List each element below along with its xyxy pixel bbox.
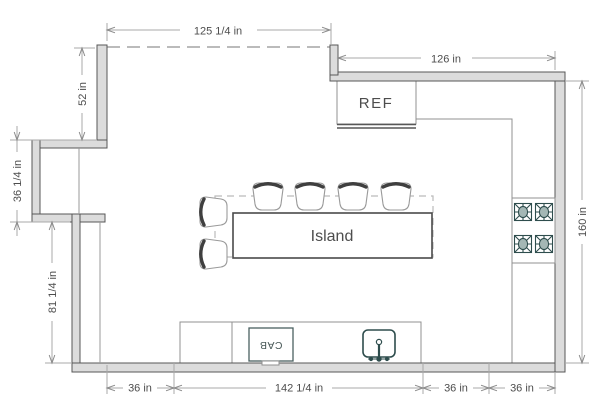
wall-right <box>555 72 565 372</box>
island-label: Island <box>311 228 354 245</box>
wall-alcove-bottom <box>32 214 105 222</box>
bar-stool <box>338 183 368 210</box>
dim-label-bottom-1: 36 in <box>128 383 152 395</box>
kitchen-sink <box>363 330 395 362</box>
cooktop <box>512 198 555 263</box>
wall-alcove-top <box>32 140 107 148</box>
dim-label-left-mid: 36 1/4 in <box>12 160 24 202</box>
interior-lines <box>79 148 100 363</box>
cooktop-burner-icon <box>536 204 553 221</box>
wall-alcove-left <box>32 140 40 222</box>
cabinet-label: CAB <box>259 339 282 351</box>
wall-top-stub <box>330 45 338 75</box>
wall-left-lower <box>72 214 80 372</box>
cabinet-handle <box>262 361 279 365</box>
faucet-head <box>376 339 381 344</box>
dim-label-right: 160 in <box>577 207 589 237</box>
dim-label-bottom-2: 142 1/4 in <box>275 383 323 395</box>
dim-label-top: 125 1/4 in <box>194 26 242 38</box>
refrigerator-label: REF <box>359 95 394 112</box>
bar-stool <box>253 183 283 210</box>
cooktop-burner-icon <box>515 236 532 253</box>
wall-top-left-vertical <box>97 45 107 148</box>
dim-label-bottom-3: 36 in <box>444 383 468 395</box>
dim-label-top-right: 126 in <box>431 54 461 66</box>
floor-plan-drawing: 125 1/4 in 126 in 52 in 36 1/4 in 81 1/4… <box>0 0 600 400</box>
floor-plan-canvas: 125 1/4 in 126 in 52 in 36 1/4 in 81 1/4… <box>0 0 600 400</box>
refrigerator-front-lines <box>337 125 416 129</box>
cooktop-burner-icon <box>515 204 532 221</box>
bar-stool <box>200 239 227 269</box>
dim-label-left-lower: 81 1/4 in <box>47 271 59 313</box>
cooktop-burner-icon <box>536 236 553 253</box>
wall-bottom <box>72 363 565 372</box>
bar-stool <box>200 197 227 227</box>
bar-stool <box>295 183 325 210</box>
wall-top-right <box>330 72 565 81</box>
bar-stool <box>381 183 411 210</box>
dim-label-bottom-4: 36 in <box>510 383 534 395</box>
dim-label-left-upper: 52 in <box>77 82 89 106</box>
